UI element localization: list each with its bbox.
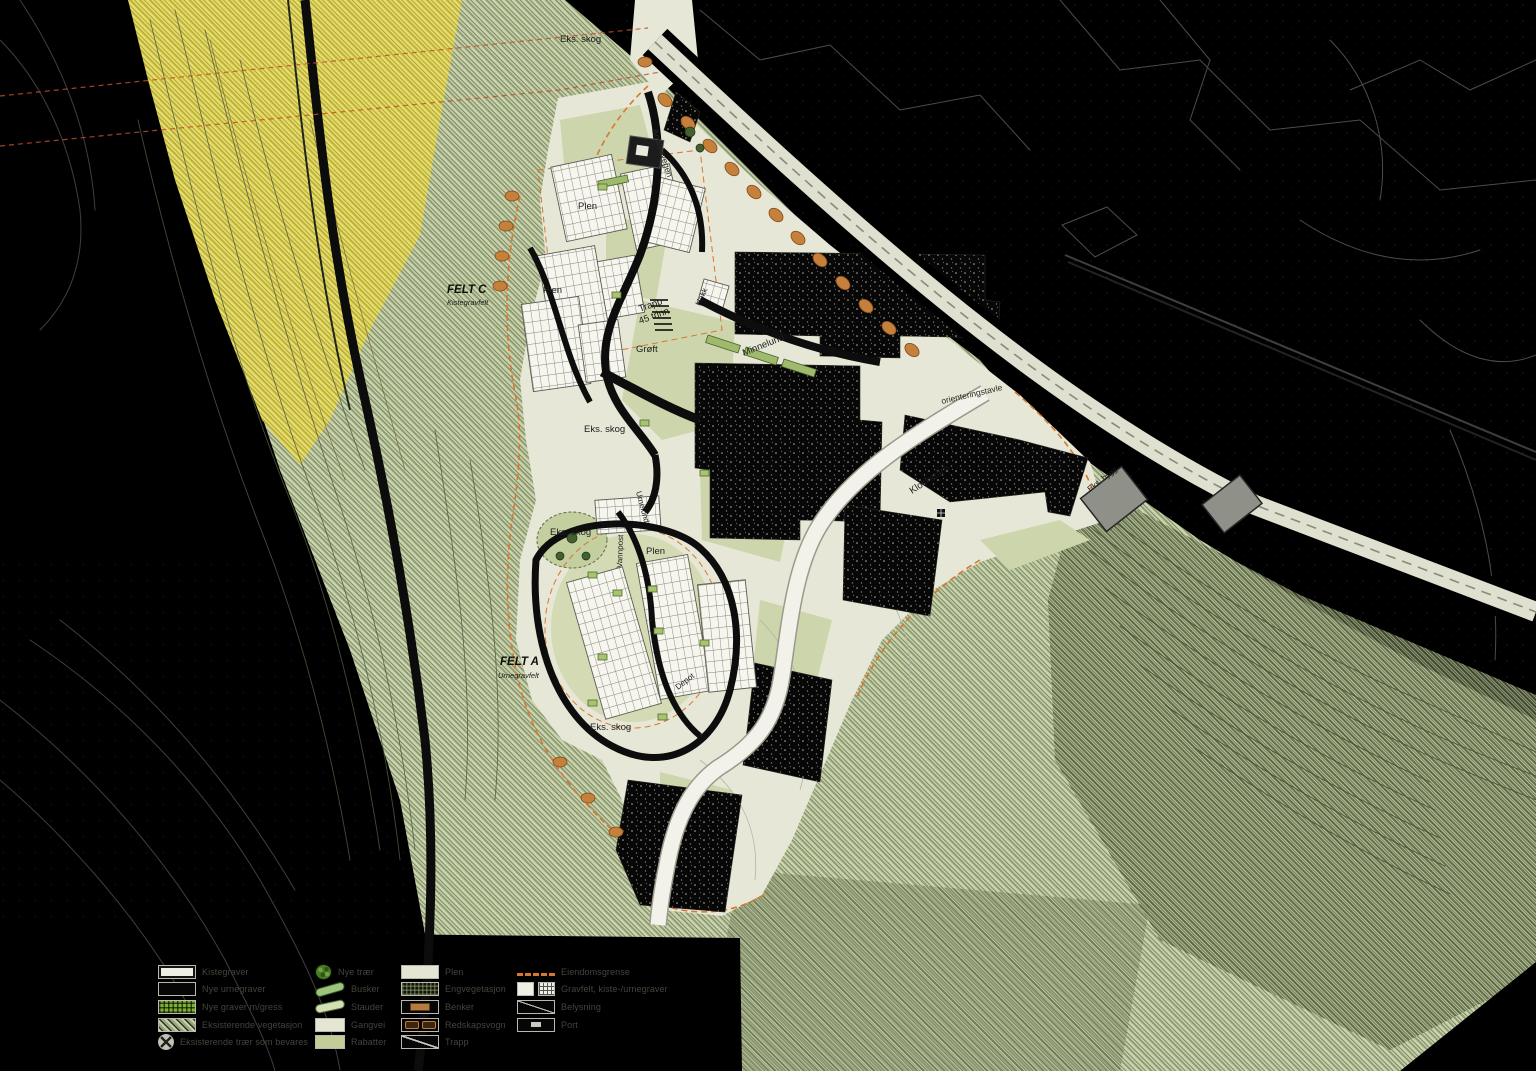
dark-checker-swatch: [401, 982, 439, 996]
label-eks-skog-top: Eks. skog: [560, 34, 601, 45]
legend-label: Nye urnegraver: [202, 984, 265, 994]
legend-item: Engvegetasjon: [401, 981, 506, 999]
legend-label: Rabatter: [351, 1037, 386, 1047]
legend-label: Gravfelt, kiste-/urnegraver: [561, 984, 668, 994]
hatch-swatch: [158, 1018, 196, 1032]
label-eks-skog-a: Eks. skog: [550, 527, 591, 538]
label-eks-skog-mid: Eks. skog: [584, 424, 625, 435]
legend-item: Port: [517, 1016, 668, 1034]
vogn-swatch: [401, 1018, 439, 1032]
label-plen-1: Plen: [578, 201, 597, 212]
legend-item: Eksisterende vegetasjon: [158, 1016, 308, 1034]
bush-dark-swatch: [314, 981, 345, 998]
legend-column-4: Eiendomsgrense Gravfelt, kiste-/urnegrav…: [517, 963, 668, 1033]
legend-label: Belysning: [561, 1002, 601, 1012]
legend-label: Benker: [445, 1002, 474, 1012]
legend-label: Eiendomsgrense: [561, 967, 630, 977]
legend-label: Redskapsvogn: [445, 1020, 506, 1030]
legend-item: Eksisterende trær som bevares: [158, 1033, 308, 1051]
legend-label: Kistegraver: [202, 967, 249, 977]
legend-item: Gravfelt, kiste-/urnegraver: [517, 981, 668, 999]
legend-label: Trapp: [445, 1037, 469, 1047]
beige-rect-swatch: [401, 965, 439, 979]
legend-label: Nye trær: [338, 967, 374, 977]
legend-item: Trapp: [401, 1033, 506, 1051]
legend-label: Port: [561, 1020, 578, 1030]
stairs-swatch: [401, 1035, 439, 1049]
label-plen-3: Plen: [646, 546, 665, 557]
legend: Kistegraver Nye urnegraver Nye graver m/…: [158, 963, 798, 1067]
orange-dash-swatch: [517, 973, 555, 976]
tree-circle-swatch: [158, 1034, 174, 1050]
legend-label: Eksisterende trær som bevares: [180, 1037, 308, 1047]
legend-label: Engvegetasjon: [445, 984, 506, 994]
label-vannpost: Vannpost: [615, 534, 625, 568]
white-rect-swatch: [158, 965, 196, 979]
site-plan: Eks. skog FELT C Kistegravfelt Plen Plen…: [0, 0, 1536, 1071]
legend-label: Busker: [351, 984, 380, 994]
legend-item: Plen: [401, 963, 506, 981]
legend-item: Gangvei: [315, 1016, 386, 1034]
legend-item: Rabatter: [315, 1033, 386, 1051]
label-felt-c: FELT C: [447, 284, 487, 296]
legend-item: Stauder: [315, 998, 386, 1016]
bush-light-swatch: [314, 999, 345, 1014]
port-swatch: [517, 1018, 555, 1032]
label-plen-2: Plen: [543, 285, 562, 296]
label-eks-skog-low: Eks. skog: [590, 722, 631, 733]
legend-item: Busker: [315, 981, 386, 999]
label-felt-c-sub: Kistegravfelt: [447, 298, 489, 307]
legend-column-1: Kistegraver Nye urnegraver Nye graver m/…: [158, 963, 308, 1051]
label-felt-a: FELT A: [500, 656, 539, 668]
legend-item: Redskapsvogn: [401, 1016, 506, 1034]
green-grid-swatch: [158, 1000, 196, 1014]
legend-item: Belysning: [517, 998, 668, 1016]
label-felt-a-sub: Urnegravfelt: [498, 671, 540, 680]
legend-item: Kistegraver: [158, 963, 308, 981]
bench-swatch: [401, 1000, 439, 1014]
grave-pair-swatch: [517, 982, 555, 996]
legend-item: Nye trær: [315, 963, 386, 981]
legend-column-3: Plen Engvegetasjon Benker Redskapsvogn T…: [401, 963, 506, 1051]
legend-item: Nye urnegraver: [158, 981, 308, 999]
tree-swatch: [315, 964, 332, 980]
klokketarn-symbol: [937, 509, 945, 517]
green-rect-swatch: [315, 1035, 345, 1049]
black-rect-swatch: [158, 982, 196, 996]
legend-label: Plen: [445, 967, 463, 977]
site-plan-map: Eks. skog FELT C Kistegravfelt Plen Plen…: [0, 0, 1536, 1071]
legend-label: Stauder: [351, 1002, 383, 1012]
legend-label: Nye graver m/gress: [202, 1002, 282, 1012]
beige-rect-swatch: [315, 1018, 345, 1032]
label-groft: Grøft: [636, 344, 658, 355]
legend-label: Eksisterende vegetasjon: [202, 1020, 302, 1030]
legend-item: Nye graver m/gress: [158, 998, 308, 1016]
diag-line-swatch: [517, 1000, 555, 1014]
legend-item: Eiendomsgrense: [517, 963, 668, 981]
legend-column-2: Nye trær Busker Stauder Gangvei Rabatter: [315, 963, 386, 1051]
legend-item: Benker: [401, 998, 506, 1016]
legend-label: Gangvei: [351, 1020, 385, 1030]
